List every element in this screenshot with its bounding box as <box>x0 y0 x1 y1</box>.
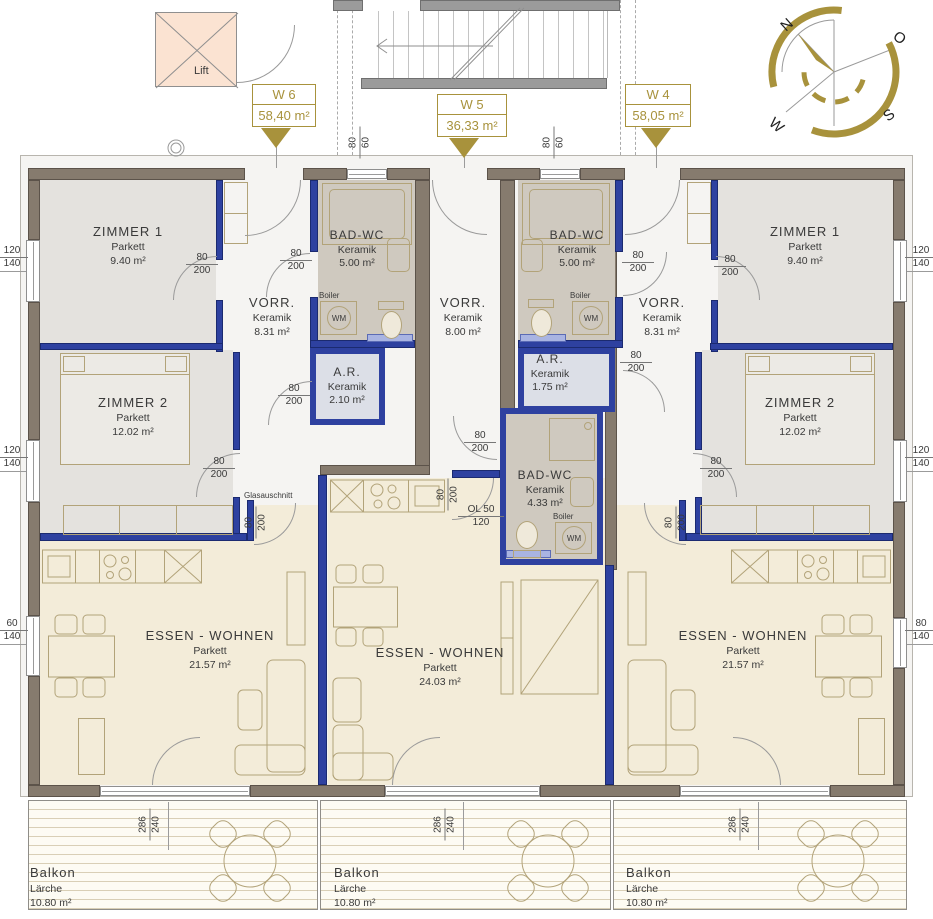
room-name: BAD-WC <box>485 468 605 484</box>
dining-set <box>333 565 398 646</box>
dim-line <box>168 802 169 850</box>
column-marker-icon <box>166 138 186 158</box>
balcony-table-set <box>795 818 881 904</box>
window <box>347 169 387 179</box>
room-area: 8.31 m² <box>212 326 332 340</box>
dim-door-rot: 80200 <box>436 479 461 511</box>
balcony-name: Balkon <box>30 864 76 882</box>
bed-blanket-line <box>61 374 189 375</box>
wall-exterior <box>387 168 430 180</box>
wardrobe-divider <box>119 506 120 534</box>
window-glass-line <box>542 174 578 175</box>
balcony-table-set <box>505 818 591 904</box>
bed-pillow <box>748 356 770 372</box>
dim-value: 200 <box>186 264 218 277</box>
wall-party <box>320 465 430 475</box>
wardrobe <box>700 505 870 535</box>
shower-drain <box>584 422 592 430</box>
door-arc <box>237 25 295 83</box>
dim-line <box>907 644 933 645</box>
dim-value: 240 <box>740 809 753 841</box>
room-area: 8.31 m² <box>602 326 722 340</box>
window-glass-line <box>33 618 34 674</box>
dim-window: 120140 <box>905 245 933 270</box>
dim-value: 80 <box>714 254 746 266</box>
dim-value: 80 <box>203 456 235 468</box>
dashed-boundary <box>635 0 636 155</box>
window <box>540 169 580 179</box>
room-material: Keramik <box>517 244 637 258</box>
boiler-label: Boiler <box>553 512 573 521</box>
room-label-bad-right: BAD-WC Keramik 5.00 m² <box>517 228 637 271</box>
washing-machine: WM <box>562 526 586 550</box>
unit-id: W 5 <box>438 95 506 115</box>
dim-window-top: 8060 <box>542 127 567 159</box>
window <box>26 240 40 302</box>
room-area: 24.03 m² <box>370 676 510 690</box>
balcony-material: Lärche <box>334 882 380 896</box>
room-name: VORR. <box>403 295 523 312</box>
room-name: ZIMMER 2 <box>73 395 193 412</box>
stair-direction <box>333 0 613 92</box>
dim-value: 80 <box>244 507 256 539</box>
wardrobe-divider <box>756 506 757 534</box>
bed-pillow <box>63 356 85 372</box>
dim-line <box>463 802 464 850</box>
window-glass-line <box>33 442 34 500</box>
dim-value: 80 <box>542 127 554 159</box>
dim-value: 200 <box>464 442 496 455</box>
room-name: A.R. <box>490 352 610 368</box>
wall-exterior <box>893 668 905 785</box>
room-area: 9.40 m² <box>68 255 188 269</box>
balcony-name: Balkon <box>626 864 672 882</box>
wardrobe-divider <box>813 506 814 534</box>
balcony-divider <box>317 800 321 910</box>
dim-value: 286 <box>138 809 150 841</box>
unit-area: 58,40 m² <box>253 105 315 126</box>
room-material: Parkett <box>140 645 280 659</box>
room-area: 5.00 m² <box>517 257 637 271</box>
dim-value: 120 <box>458 516 504 529</box>
room-label-vorraum-right: VORR. Keramik 8.31 m² <box>602 295 722 339</box>
room-name: ESSEN - WOHNEN <box>140 628 280 645</box>
unit-id: W 6 <box>253 85 315 105</box>
dim-value: 200 <box>278 395 310 408</box>
wall-exterior <box>540 785 680 797</box>
dim-balcony-door: 286 240 <box>728 809 753 841</box>
room-name: A.R. <box>287 365 407 381</box>
room-label-wohnen-mid: ESSEN - WOHNEN Parkett 24.03 m² <box>370 645 510 689</box>
dim-value: 200 <box>700 468 732 481</box>
room-name: ZIMMER 1 <box>68 224 188 241</box>
room-area: 1.75 m² <box>490 381 610 395</box>
room-area: 8.00 m² <box>403 326 523 340</box>
window-glass-line <box>349 174 385 175</box>
kitchen-counter <box>731 548 891 585</box>
window-glass-line <box>900 620 901 666</box>
room-label-ar-right: A.R. Keramik 1.75 m² <box>490 352 610 395</box>
balcony-area: 10.80 m² <box>334 896 380 910</box>
dim-value: 80 <box>620 350 652 362</box>
wall-interior <box>233 497 240 535</box>
room-material: Keramik <box>403 312 523 326</box>
wall-exterior <box>303 168 347 180</box>
balcony-table-set <box>207 818 293 904</box>
compass-s: S <box>880 106 898 126</box>
dim-value: 60 <box>360 127 373 159</box>
toilet-tank <box>528 299 554 308</box>
room-area: 12.02 m² <box>740 426 860 440</box>
room-material: Parkett <box>370 662 510 676</box>
dim-value: 200 <box>714 266 746 279</box>
dim-window: 120140 <box>0 245 28 270</box>
wall-exterior <box>893 180 905 240</box>
dim-balcony-door: 286 240 <box>433 809 458 841</box>
dim-value: 120 <box>0 445 28 457</box>
unit-leader-line <box>656 146 657 168</box>
window <box>26 440 40 502</box>
dim-door: 80200 <box>280 248 312 273</box>
unit-tag-w5: W 5 36,33 m² <box>437 94 507 137</box>
dim-window: 80140 <box>905 618 933 643</box>
dim-value: 80 <box>278 383 310 395</box>
glass-cut-label: Glasauschnitt <box>244 491 292 500</box>
balcony-area: 10.80 m² <box>626 896 672 910</box>
dim-value: 140 <box>0 630 28 643</box>
window-glass-line <box>33 242 34 300</box>
room-area: 21.57 m² <box>140 659 280 673</box>
dim-value: 80 <box>700 456 732 468</box>
dim-ol: OL 50120 <box>458 504 504 529</box>
balcony-material: Lärche <box>30 882 76 896</box>
dim-line <box>907 271 933 272</box>
wall-exterior <box>580 168 625 180</box>
room-name: ZIMMER 2 <box>740 395 860 412</box>
wardrobe <box>63 505 233 535</box>
balcony-glass-door <box>680 786 830 796</box>
dim-value: 240 <box>445 809 458 841</box>
unit-id: W 4 <box>626 85 690 105</box>
floor-plan: Balkon Lärche 10.80 m² Balkon Lärche 10.… <box>0 0 933 919</box>
room-material: Keramik <box>212 312 332 326</box>
wall-exterior <box>893 302 905 440</box>
room-name: BAD-WC <box>297 228 417 244</box>
dim-value: 120 <box>905 445 933 457</box>
window-glass-line <box>900 242 901 300</box>
wall-exterior <box>28 785 100 797</box>
room-name: BAD-WC <box>517 228 637 244</box>
balcony-label: Balkon Lärche 10.80 m² <box>626 864 672 910</box>
dim-value: 140 <box>905 630 933 643</box>
room-material: Parkett <box>673 645 813 659</box>
wall-exterior <box>487 168 540 180</box>
dim-value: 80 <box>905 618 933 630</box>
wardrobe-bed-block <box>500 578 600 696</box>
washing-machine: WM <box>579 306 603 330</box>
room-area: 21.57 m² <box>673 659 813 673</box>
unit-leader-line <box>276 146 277 168</box>
wall-interior <box>318 475 327 785</box>
dining-set <box>48 615 115 697</box>
room-area: 9.40 m² <box>745 255 865 269</box>
dim-value: 140 <box>905 257 933 270</box>
dim-value: 80 <box>186 252 218 264</box>
dim-value: 200 <box>203 468 235 481</box>
room-material: Parkett <box>740 412 860 426</box>
toilet <box>381 311 402 339</box>
kitchen-counter <box>42 548 202 585</box>
room-area: 5.00 m² <box>297 257 417 271</box>
elevator: Lift <box>155 12 237 87</box>
room-name: VORR. <box>602 295 722 312</box>
wall-interior <box>40 343 223 350</box>
room-label-zimmer2-left: ZIMMER 2 Parkett 12.02 m² <box>73 395 193 439</box>
dim-door: 80200 <box>278 383 310 408</box>
dim-value: 200 <box>622 262 654 275</box>
compass-w: W <box>765 114 788 137</box>
room-material: Parkett <box>73 412 193 426</box>
room-label-zimmer2-right: ZIMMER 2 Parkett 12.02 m² <box>740 395 860 439</box>
wall-interior <box>216 180 223 260</box>
dim-value: 80 <box>436 479 448 511</box>
dim-door: 80200 <box>464 430 496 455</box>
wall-exterior <box>830 785 905 797</box>
sofa-group <box>233 570 308 780</box>
balcony-material: Lärche <box>626 882 672 896</box>
toilet-tank <box>513 550 541 558</box>
wall-exterior <box>250 785 385 797</box>
window-glass-line <box>102 791 248 792</box>
room-label-wohnen-left: ESSEN - WOHNEN Parkett 21.57 m² <box>140 628 280 672</box>
sofa-group <box>625 570 700 780</box>
compass-rose: N O S W <box>742 6 924 146</box>
dim-line <box>0 271 26 272</box>
boiler-label: Boiler <box>570 291 590 300</box>
wall-interior <box>605 565 614 785</box>
dim-door: 80200 <box>203 456 235 481</box>
toilet <box>531 309 552 337</box>
dim-value: 200 <box>256 507 269 539</box>
elevator-label: Lift <box>194 65 209 77</box>
window-glass-line <box>387 791 538 792</box>
window-glass-line <box>682 791 828 792</box>
dim-value: 80 <box>464 430 496 442</box>
kitchen-counter <box>330 478 445 514</box>
wall-exterior <box>28 168 245 180</box>
bed-blanket-line <box>746 374 874 375</box>
wall-exterior <box>28 180 40 240</box>
dim-line <box>907 471 933 472</box>
dim-value: 286 <box>433 809 445 841</box>
room-name: ESSEN - WOHNEN <box>370 645 510 662</box>
room-name: ESSEN - WOHNEN <box>673 628 813 645</box>
unit-tag-w4: W 4 58,05 m² <box>625 84 691 127</box>
dim-door-rot: 80200 <box>244 507 269 539</box>
balcony-label: Balkon Lärche 10.80 m² <box>30 864 76 910</box>
compass-n: N <box>777 15 796 35</box>
entry-closet-divider <box>688 213 710 214</box>
dim-door-rot: 80200 <box>664 507 689 539</box>
room-material: Keramik <box>297 244 417 258</box>
room-label-vorraum-left: VORR. Keramik 8.31 m² <box>212 295 332 339</box>
unit-tag-w6: W 6 58,40 m² <box>252 84 316 127</box>
wall-interior <box>695 352 702 450</box>
room-material: Keramik <box>490 368 610 382</box>
balcony-label: Balkon Lärche 10.80 m² <box>334 864 380 910</box>
room-material: Keramik <box>485 484 605 498</box>
dim-window: 120140 <box>0 445 28 470</box>
wall-interior <box>711 180 718 260</box>
dim-balcony-door: 286 240 <box>138 809 163 841</box>
bed-pillow <box>165 356 187 372</box>
dim-value: 286 <box>728 809 740 841</box>
dim-value: OL 50 <box>458 504 504 516</box>
dim-value: 80 <box>664 507 676 539</box>
unit-area: 36,33 m² <box>438 115 506 136</box>
dim-window: 60140 <box>0 618 28 643</box>
wall-exterior <box>28 502 40 616</box>
unit-pointer-icon <box>261 128 291 148</box>
balcony-name: Balkon <box>334 864 380 882</box>
dim-window: 120140 <box>905 445 933 470</box>
dim-value: 80 <box>622 250 654 262</box>
dim-value: 200 <box>620 362 652 375</box>
dim-value: 140 <box>905 457 933 470</box>
sofa-group <box>332 675 402 783</box>
dim-line <box>758 802 759 850</box>
window <box>26 616 40 676</box>
dim-value: 200 <box>280 260 312 273</box>
room-label-zimmer1-right: ZIMMER 1 Parkett 9.40 m² <box>745 224 865 268</box>
room-name: VORR. <box>212 295 332 312</box>
wall-interior <box>233 352 240 450</box>
balcony-area: 10.80 m² <box>30 896 76 910</box>
dim-door: 80200 <box>186 252 218 277</box>
unit-pointer-icon <box>449 138 479 158</box>
dim-value: 120 <box>0 245 28 257</box>
dim-value: 120 <box>905 245 933 257</box>
wall-exterior <box>893 502 905 618</box>
dim-value: 60 <box>554 127 567 159</box>
room-label-bad-left: BAD-WC Keramik 5.00 m² <box>297 228 417 271</box>
dim-value: 240 <box>150 809 163 841</box>
dim-value: 60 <box>0 618 28 630</box>
toilet <box>516 521 538 549</box>
dim-door: 80200 <box>714 254 746 279</box>
wall-exterior <box>28 676 40 785</box>
dim-line <box>0 471 26 472</box>
balcony-glass-door <box>385 786 540 796</box>
dim-value: 140 <box>0 457 28 470</box>
room-label-zimmer1-left: ZIMMER 1 Parkett 9.40 m² <box>68 224 188 268</box>
room-label-wohnen-right: ESSEN - WOHNEN Parkett 21.57 m² <box>673 628 813 672</box>
dim-door: 80200 <box>620 350 652 375</box>
unit-area: 58,05 m² <box>626 105 690 126</box>
dining-set <box>815 615 882 697</box>
side-shelf <box>858 718 885 775</box>
dim-value: 200 <box>676 507 689 539</box>
wall-interior <box>710 343 893 350</box>
toilet-tank <box>378 301 404 310</box>
dim-door: 80200 <box>700 456 732 481</box>
room-area: 12.02 m² <box>73 426 193 440</box>
dim-value: 140 <box>0 257 28 270</box>
room-label-vorraum-mid: VORR. Keramik 8.00 m² <box>403 295 523 339</box>
wall-exterior <box>28 302 40 440</box>
room-material: Parkett <box>68 241 188 255</box>
wall-exterior <box>680 168 905 180</box>
dim-door: 80200 <box>622 250 654 275</box>
bed-pillow <box>850 356 872 372</box>
unit-pointer-icon <box>641 128 671 148</box>
dim-value: 80 <box>280 248 312 260</box>
entry-closet-divider <box>225 213 247 214</box>
dashed-boundary <box>620 0 621 155</box>
balcony-divider <box>610 800 614 910</box>
dim-line <box>0 644 26 645</box>
room-material: Parkett <box>745 241 865 255</box>
room-name: ZIMMER 1 <box>745 224 865 241</box>
side-shelf <box>78 718 105 775</box>
dim-value: 80 <box>348 127 360 159</box>
wardrobe-divider <box>176 506 177 534</box>
balcony-glass-door <box>100 786 250 796</box>
window-glass-line <box>900 442 901 500</box>
room-material: Keramik <box>602 312 722 326</box>
